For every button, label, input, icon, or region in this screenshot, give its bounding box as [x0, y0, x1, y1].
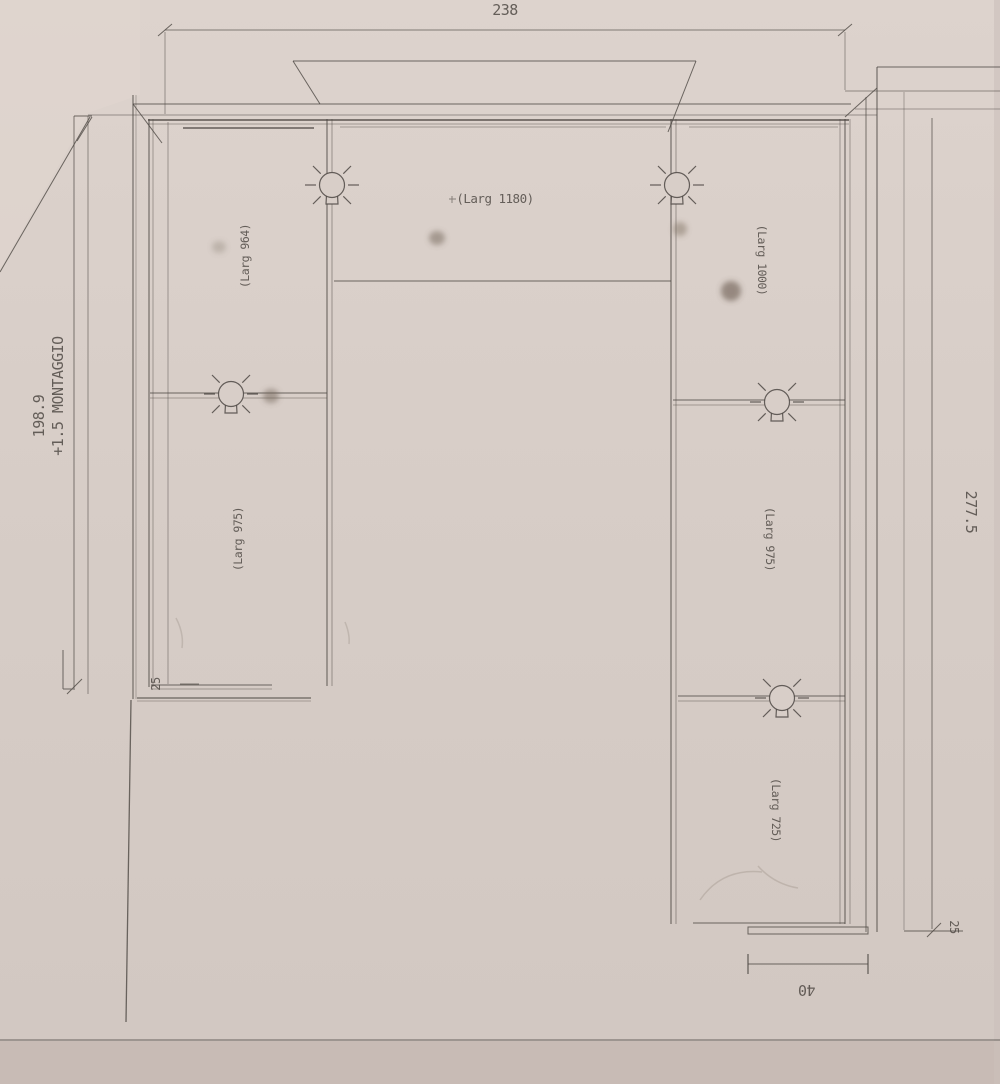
dim-filler-left: 25: [149, 677, 163, 691]
label-top-center-cabinet: (Larg 1180): [456, 191, 533, 206]
dim-left-height: 198.9: [30, 394, 48, 437]
dim-bottom-width: 40: [798, 981, 816, 999]
dim-total-width: 238: [492, 1, 518, 19]
technical-drawing-photo: 238 198.9 +1.5 MONTAGGIO 277.5 25 25 40 …: [0, 0, 1000, 1084]
label-right-bottom-cabinet: (Larg 725): [769, 778, 783, 842]
cabinet-plan-drawing: 238 198.9 +1.5 MONTAGGIO 277.5 25 25 40 …: [0, 0, 1000, 1084]
dim-right-height: 277.5: [962, 491, 980, 534]
dim-filler-right: 25: [947, 920, 961, 934]
label-left-mid-cabinet: (Larg 975): [231, 507, 245, 571]
label-right-mid-cabinet: (Larg 975): [763, 507, 777, 571]
label-right-top-cabinet: (Larg 1000): [755, 225, 769, 296]
label-left-top-cabinet: (Larg 964): [238, 224, 252, 288]
dim-left-note: +1.5 MONTAGGIO: [49, 336, 67, 456]
